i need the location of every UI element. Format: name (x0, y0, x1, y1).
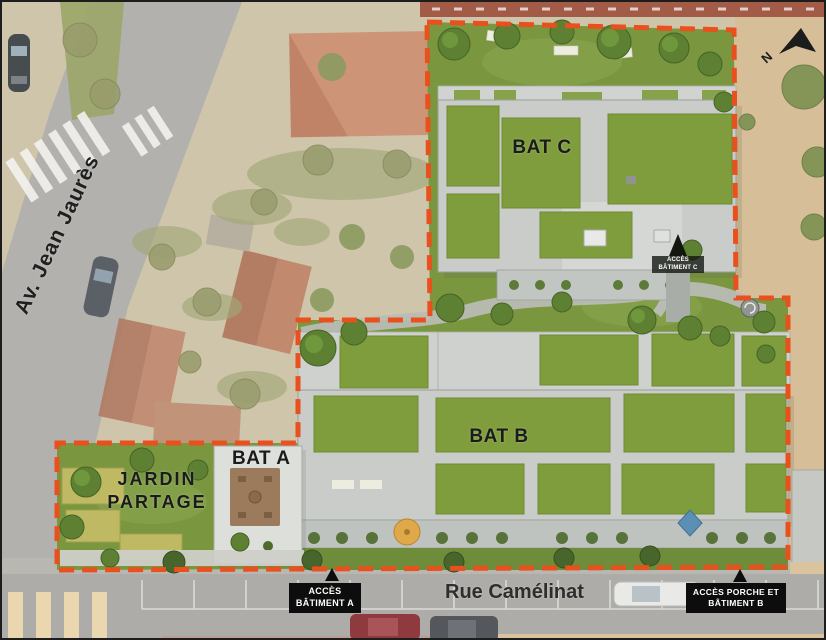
car-dark (430, 616, 498, 640)
access-c-line1: ACCÈS (667, 257, 689, 265)
access-b-arrow-icon (733, 569, 747, 582)
access-a-line2: BÂTIMENT A (296, 598, 354, 610)
access-a-arrow-icon (325, 568, 339, 581)
access-c-arrow-icon (669, 234, 687, 256)
access-c-line2: BÂTIMENT C (659, 265, 698, 273)
access-b-line2: BÂTIMENT B (708, 598, 763, 609)
car-red (350, 614, 420, 640)
access-batiment-a-label: ACCÈS BÂTIMENT A (289, 583, 361, 613)
access-porche-b-label: ACCÈS PORCHE ET BÂTIMENT B (686, 583, 786, 613)
site-plan-image: Av. Jean Jaurès BAT C BAT B BAT A JARDIN… (0, 0, 826, 640)
building-bat-b (298, 332, 794, 570)
bat-c-entry-path (666, 270, 690, 322)
access-batiment-c-label: ACCÈS BÂTIMENT C (652, 256, 704, 273)
scene-svg (2, 2, 826, 640)
access-a-line1: ACCÈS (308, 586, 341, 598)
north-edge-strip (420, 2, 826, 17)
car-top-left (8, 34, 30, 92)
building-bat-a (214, 446, 306, 568)
bottom-sidewalk-right (482, 634, 826, 640)
context-building-right (790, 470, 826, 574)
access-b-line1: ACCÈS PORCHE ET (693, 587, 779, 598)
